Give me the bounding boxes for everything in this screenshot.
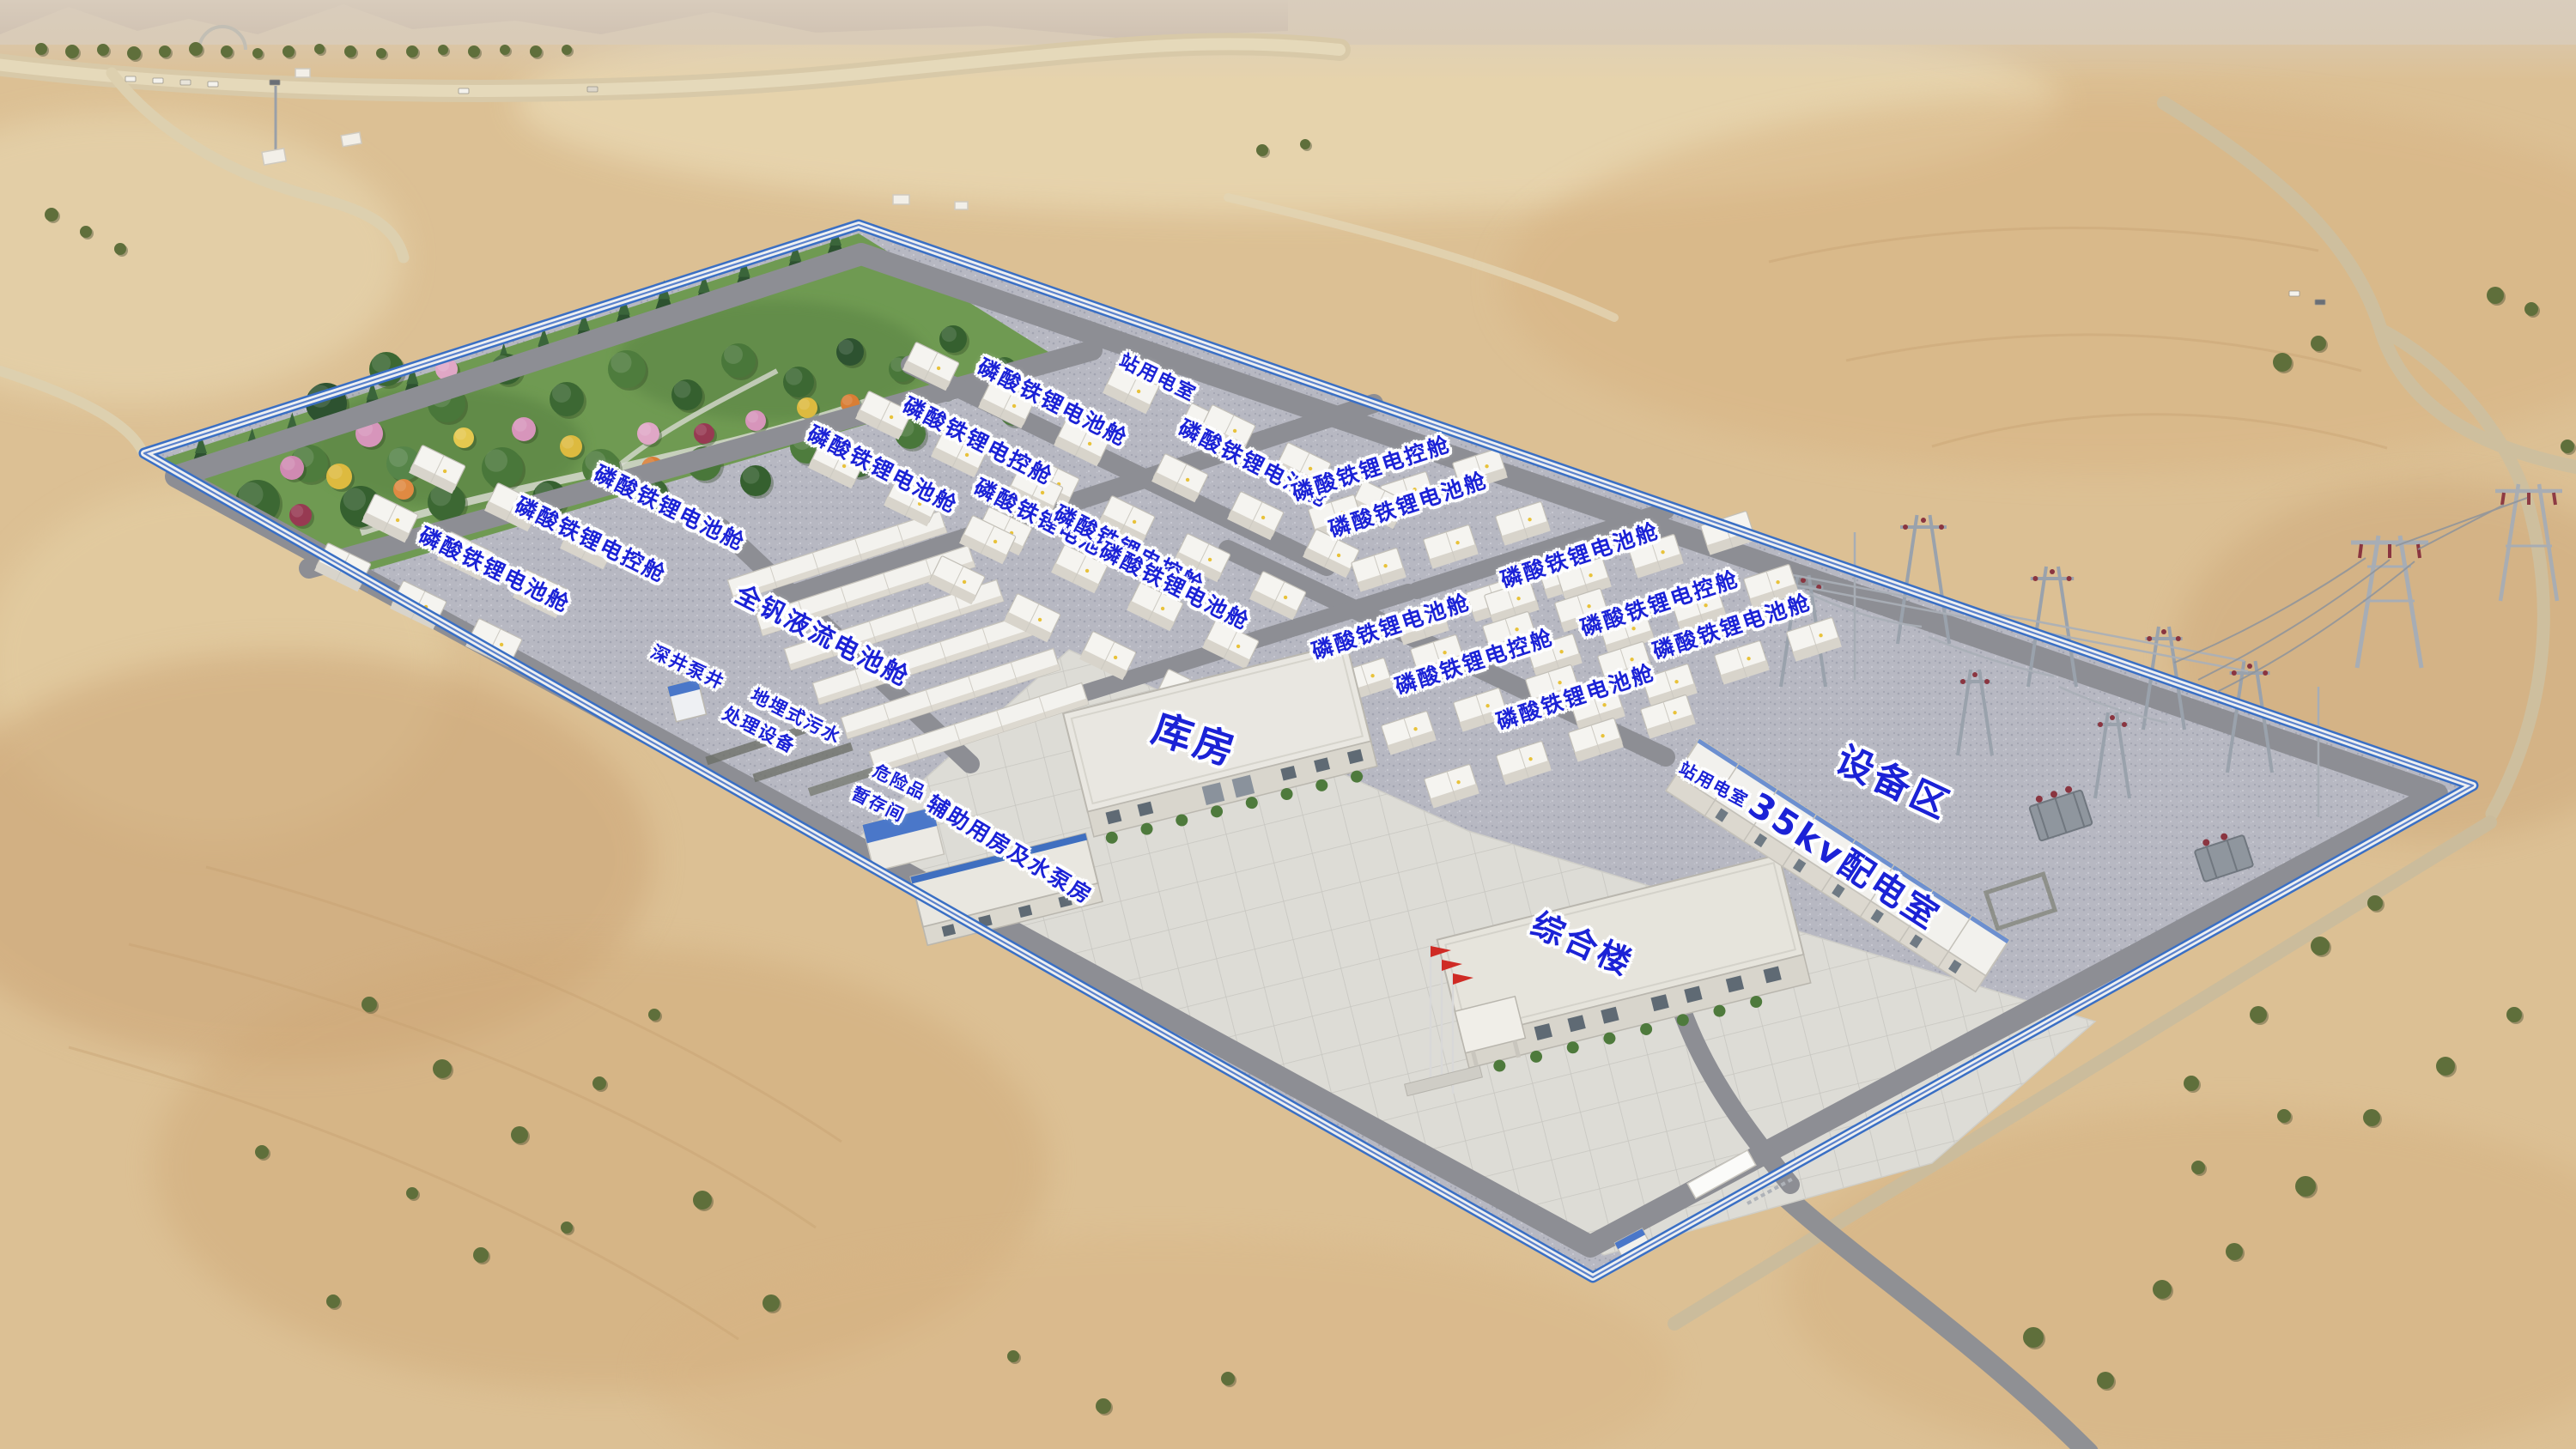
vehicle: [125, 76, 136, 82]
vehicle: [270, 80, 280, 85]
aerial-site-rendering: 磷酸铁锂电池舱磷酸铁锂电控舱磷酸铁锂电池舱站用电室磷酸铁锂电池舱磷酸铁锂电控舱磷…: [0, 0, 2576, 1449]
vehicle: [2289, 291, 2300, 296]
vehicle: [208, 82, 218, 87]
scene-graphics: [0, 0, 2576, 1449]
vehicle: [153, 78, 163, 83]
vehicle: [180, 80, 191, 85]
vehicle: [2315, 300, 2325, 305]
vehicle: [459, 88, 469, 94]
vehicle: [587, 87, 598, 92]
